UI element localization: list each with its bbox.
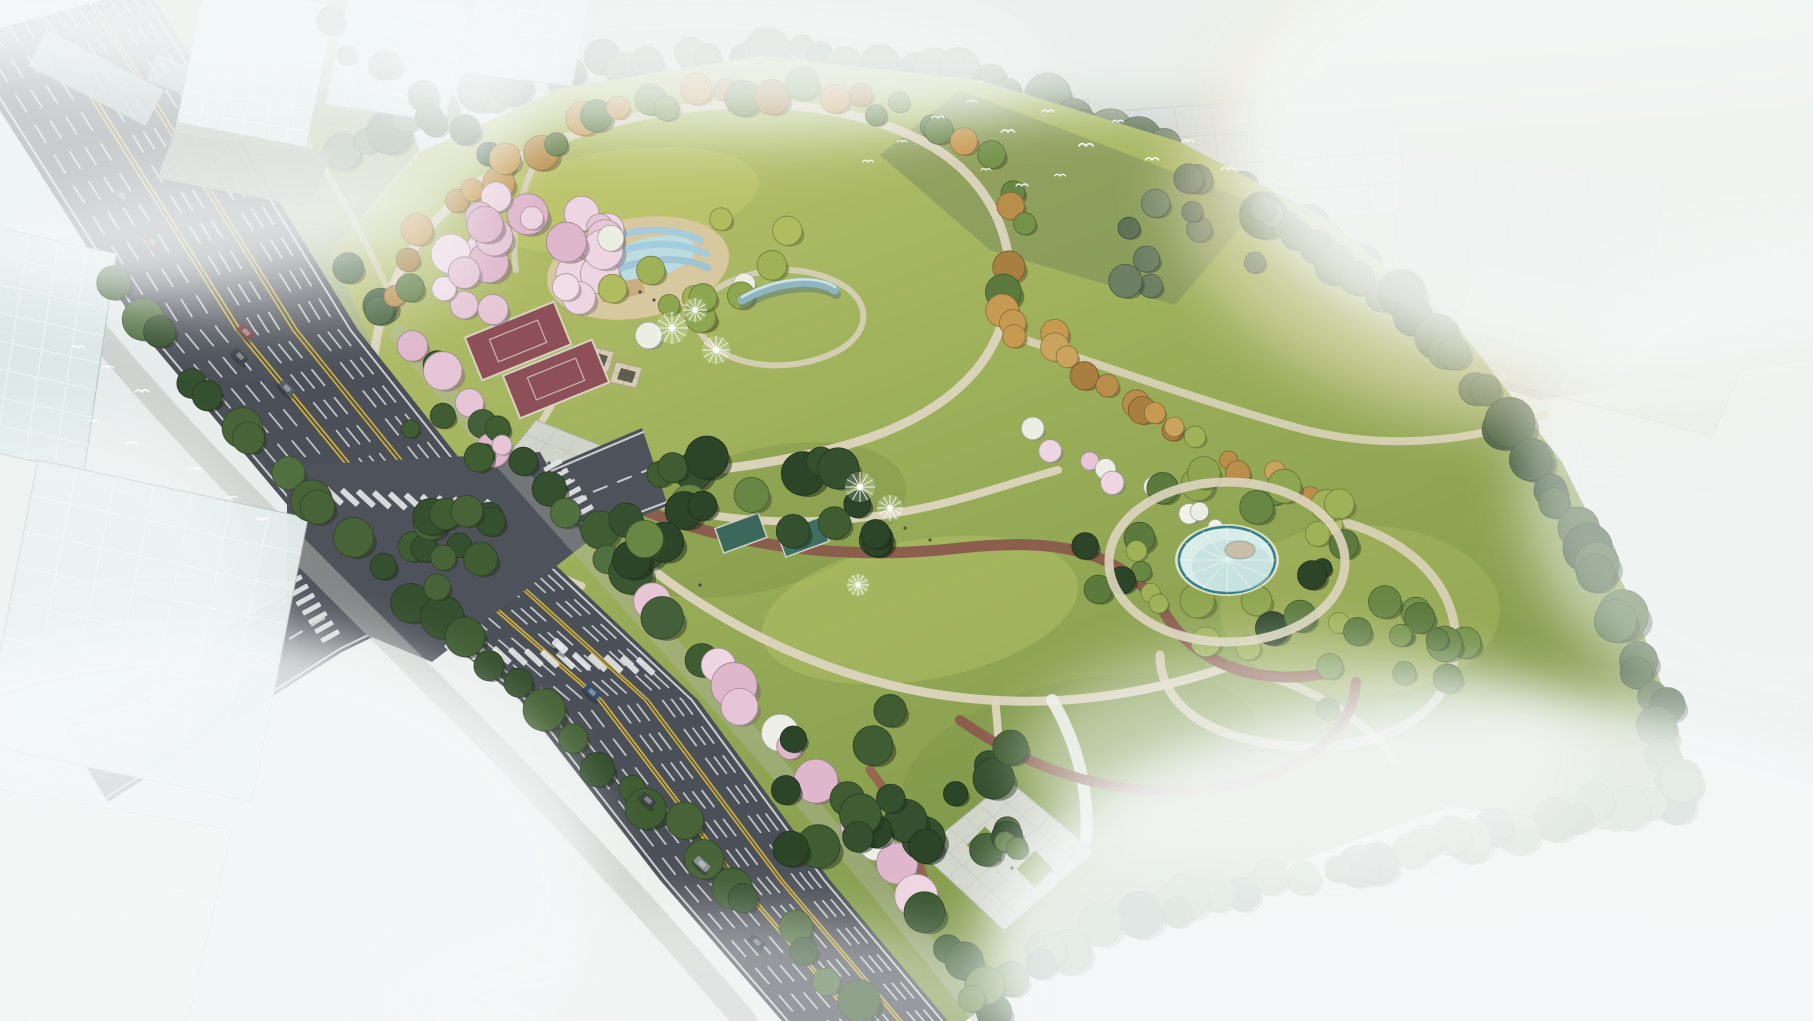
dandelion-sculpture-6 [847, 574, 869, 596]
dandelion-sculpture-4 [845, 472, 875, 502]
dandelion-sculpture-1 [656, 312, 688, 344]
dandelion-sculpture-3 [683, 298, 707, 322]
circular-pavilion-oculus [1225, 541, 1255, 559]
fog-bottom-right-streak [1020, 640, 1580, 880]
aerial-park-rendering [0, 0, 1813, 1021]
dandelion-sculpture-5 [877, 495, 903, 521]
scene-svg [0, 0, 1813, 1021]
dandelion-sculpture-2 [702, 336, 730, 364]
fog-center-left [30, 170, 490, 330]
